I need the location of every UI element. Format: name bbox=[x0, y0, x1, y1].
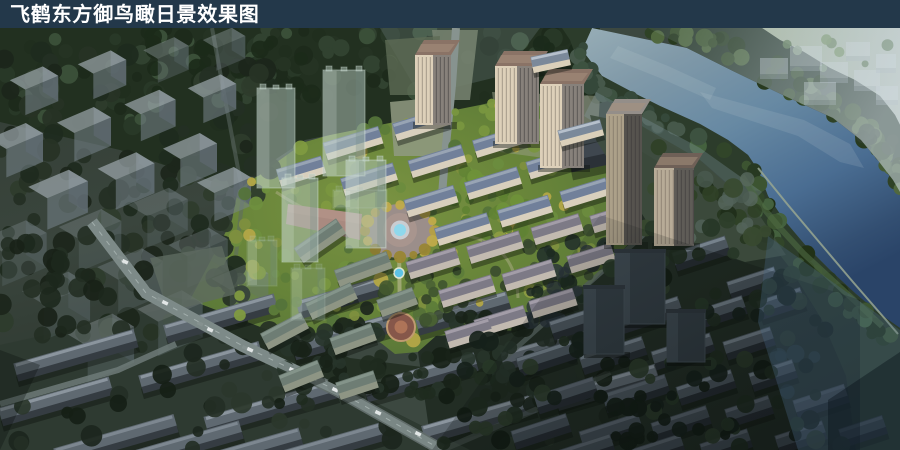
svg-text:飞鹤东方御鸟瞰日景效果图: 飞鹤东方御鸟瞰日景效果图 bbox=[10, 2, 260, 26]
